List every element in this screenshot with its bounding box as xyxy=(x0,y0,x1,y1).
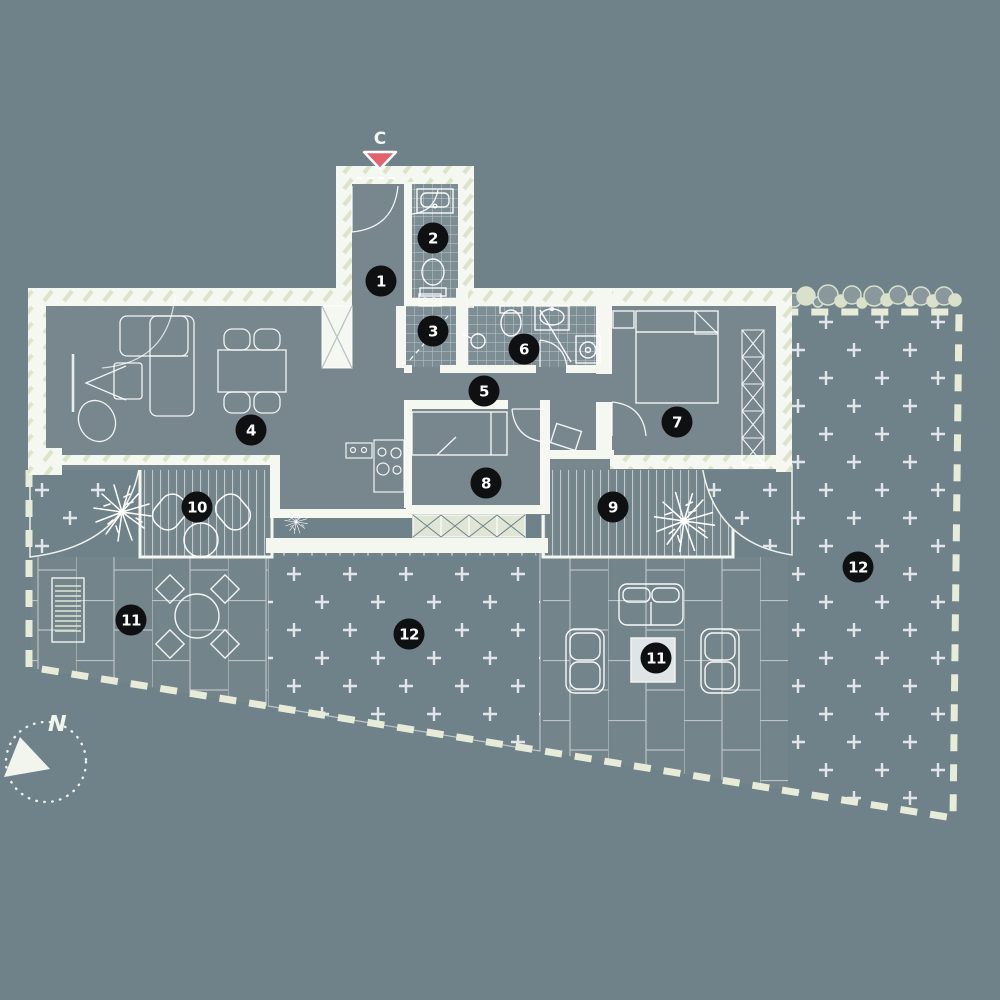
south-edge-band xyxy=(266,538,548,553)
outdoor-storage-boxes xyxy=(413,515,525,537)
shaft-icon xyxy=(322,306,352,368)
entrance-label: C xyxy=(374,129,386,149)
garden-center xyxy=(268,549,540,751)
outdoor-table-icon xyxy=(631,638,675,682)
floor-plan-svg xyxy=(0,0,1000,1000)
terrace-deck-left xyxy=(140,461,272,557)
bushes-row xyxy=(787,285,961,308)
garden-right xyxy=(792,312,955,814)
floor-plan-canvas: 1234567891011121112 N C xyxy=(0,0,1000,1000)
